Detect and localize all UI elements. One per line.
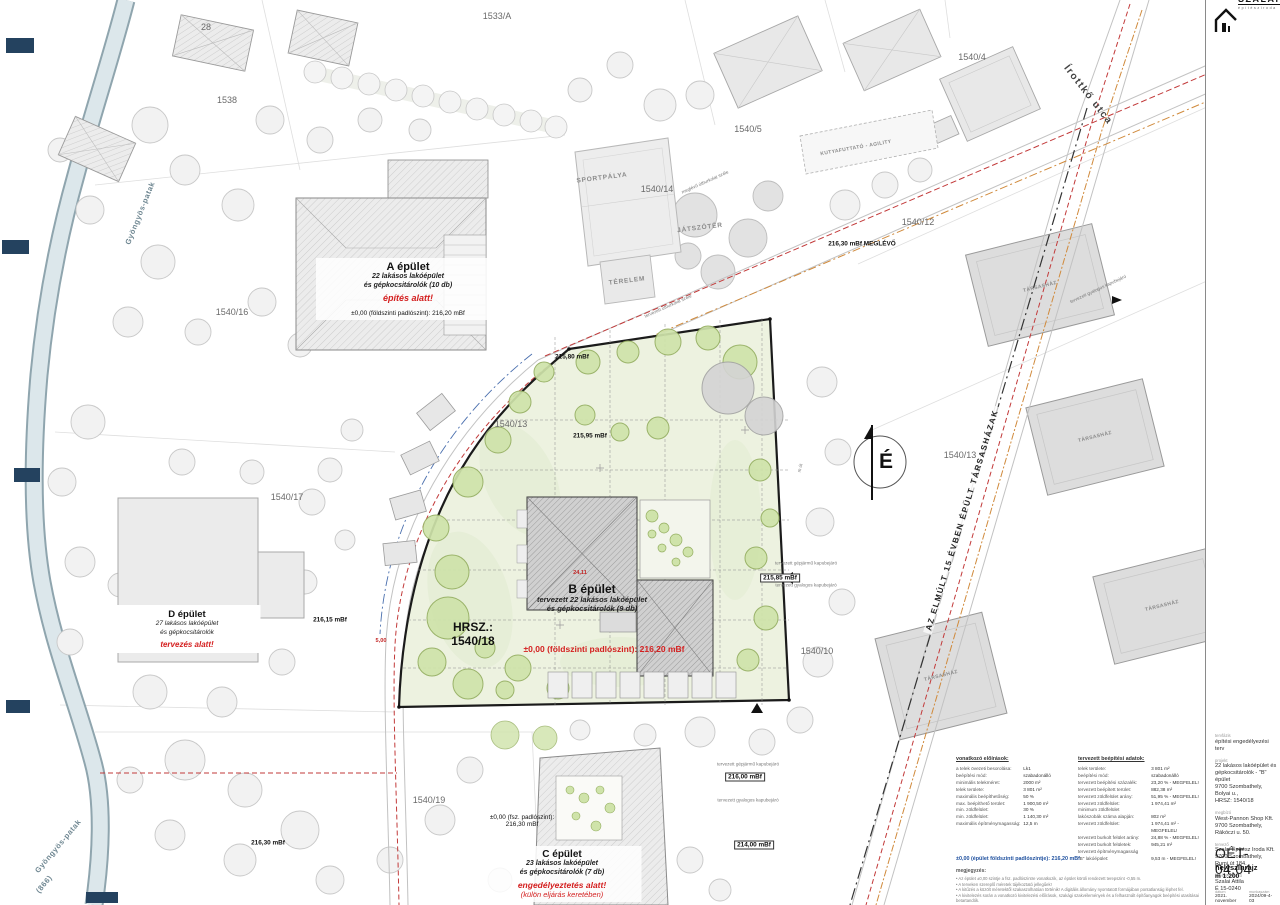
drawing-title: helyszínrajz: [1215, 863, 1258, 872]
title-block-field: megbízó West-Pannon Shop Kft. 9700 Szomb…: [1215, 810, 1277, 837]
planned-title: tervezett beépítési adatok:: [1078, 756, 1204, 762]
table-row: "B" lakóépület: 9,53 m - MEGFELEL!: [1078, 856, 1204, 863]
building-c-status2: (külön eljárás keretében): [490, 890, 635, 899]
title-block: SZALAI építésziroda tervfázis építési en…: [1205, 0, 1280, 905]
site-hrsz-label: HRSZ.: 1540/18: [451, 620, 494, 648]
building-d-desc2: és gépkocsitárolók: [120, 629, 255, 638]
building-b-desc2: és gépkocsitárolók (9 db): [487, 605, 697, 614]
building-c-status: engedélyeztetés alatt!: [490, 880, 635, 890]
table-row: beépítési mód: szabadonálló: [956, 773, 1072, 780]
building-b-title: B épület: [487, 582, 697, 596]
table-row: tervezett burkolt felület arány: 24,88 %…: [1078, 835, 1204, 842]
note-item: A kivitelezés során a vonatkozó kivitele…: [956, 893, 1206, 904]
tree-allee: [304, 61, 567, 138]
site-1540-18: [397, 296, 1122, 750]
table-row: maximális beépíthetőség: 50 %: [956, 794, 1072, 801]
table-row: tervezett zöldfelület arány: 51,95 % - M…: [1078, 794, 1204, 801]
title-block-meta: dátum 2021. november munkaszám 2024/09-4…: [1215, 890, 1277, 904]
building-c-desc2: és gépkocsitárolók (7 db): [490, 869, 635, 878]
table-row: max. beépíthető terület: 1 900,50 m²: [956, 801, 1072, 808]
table-row: minimális telekméret: 2000 m²: [956, 780, 1072, 787]
worknum-value: 2024/09-4-03: [1249, 894, 1277, 904]
building-a-desc: 22 lakásos lakóépület: [323, 273, 493, 282]
building-d-status: tervezés alatt!: [120, 640, 255, 649]
regulations-title: vonatkozó előírások:: [956, 756, 1072, 762]
table-row: beépítési mód: szabadonálló: [1078, 773, 1204, 780]
regulations-table: vonatkozó előírások: a telek övezeti bes…: [956, 756, 1072, 828]
table-row: telek területe: 3 801 m²: [1078, 766, 1204, 773]
table-row: telek területe: 3 801 m²: [956, 787, 1072, 794]
table-row: tervezett zöldfelület: 1 974,41 m² - MEG…: [1078, 821, 1204, 835]
building-d-annotation: D épület 27 lakásos lakóépület és gépkoc…: [114, 605, 261, 653]
drawing-scale: m 1:200: [1215, 873, 1239, 880]
table-row: maximális építménymagasság: 12,5 m: [956, 821, 1072, 828]
building-c-desc: 23 lakásos lakóépület: [490, 860, 635, 869]
building-a-status: építés alatt!: [323, 293, 493, 303]
tarsashaz-blocks: [875, 224, 1231, 740]
hrsz-line1: HRSZ.:: [451, 620, 494, 634]
building-a-annotation: A épület 22 lakásos lakóépület és gépkoc…: [316, 258, 500, 320]
trees-south-of-site: [491, 721, 557, 750]
worknum-field: munkaszám 2024/09-4-03: [1249, 890, 1277, 904]
building-c-annotation: C épület 23 lakásos lakóépület és gépkoc…: [483, 846, 642, 902]
building-d-title: D épület: [120, 609, 255, 620]
table-row: tervezett építménymagasság: [1078, 849, 1204, 856]
date-value: 2021. november: [1215, 894, 1249, 904]
building-c-elevation: ±0,00 (fsz. padlószint): 216,30 mBf: [467, 814, 577, 828]
building-a-desc2: és gépkocsitárolók (10 db): [323, 282, 493, 291]
table-row: lakószobák száma alapján: 802 m²: [1078, 814, 1204, 821]
building-a-elevation: ±0,00 (földszinti padlószint): 216,20 mB…: [323, 310, 493, 317]
notes-block: megjegyzés: Az épület ±0,00 szintje a fs…: [956, 868, 1206, 904]
table-row: min. zöldfelület: 1 140,30 m²: [956, 814, 1072, 821]
building-a-title: A épület: [323, 261, 493, 273]
house-logo-icon: [1214, 8, 1276, 34]
building-c-elev2: 216,30 mBf: [467, 821, 577, 828]
north-letter: É: [879, 450, 893, 474]
table-row: tervezett beépítési százalék: 23,20 % - …: [1078, 780, 1204, 787]
table-row: a telek övezeti besorolása: Lk1: [956, 766, 1072, 773]
building-a-footprint: [296, 160, 488, 350]
planned-rows: telek területe: 3 801 m² beépítési mód: …: [1078, 766, 1204, 863]
floor-level-note: ±0,00 (épület földszinti padlószintje): …: [956, 856, 1080, 862]
building-b-annotation: B épület tervezett 22 lakásos lakóépület…: [487, 582, 697, 613]
logo-brand-text: SZALAI: [1238, 0, 1280, 5]
site-plan-page: 1533/A2815381540/41540/51540/141540/1215…: [0, 0, 1280, 905]
planned-data-table: tervezett beépítési adatok: telek terüle…: [1078, 756, 1204, 863]
building-c-elev1: ±0,00 (fsz. padlószint):: [467, 814, 577, 821]
title-block-field: projekt 22 lakásos lakóépület és gépkocs…: [1215, 758, 1277, 806]
playground-trees: [673, 181, 783, 289]
hrsz-line2: 1540/18: [451, 634, 494, 648]
title-block-field: tervfázis építési engedélyezési terv: [1215, 733, 1277, 753]
table-row: min. zöldfelület: 30 %: [956, 807, 1072, 814]
table-row: tervezett zöldfelület: 1 974,41 m²: [1078, 801, 1204, 808]
building-b-elevation: ±0,00 (földszinti padlószint): 216,20 mB…: [494, 644, 714, 654]
notes-items: Az épület ±0,00 szintje a fsz. padlószin…: [956, 876, 1206, 904]
notes-title: megjegyzés:: [956, 868, 1206, 874]
date-field: dátum 2021. november: [1215, 890, 1249, 904]
table-row: minimum zöldfelület: [1078, 807, 1204, 814]
building-b-elevation-text: ±0,00 (földszinti padlószint): 216,20 mB…: [494, 644, 714, 654]
building-d-desc: 27 lakásos lakóépület: [120, 620, 255, 629]
terelem-pad: [600, 255, 655, 304]
regulations-rows: a telek övezeti besorolása: Lk1 beépítés…: [956, 766, 1072, 828]
building-c-title: C épület: [490, 849, 635, 860]
firm-logo: SZALAI építésziroda: [1214, 8, 1276, 10]
table-row: tervezett burkolt felületek: 945,21 m²: [1078, 842, 1204, 849]
sport-field: [575, 138, 681, 266]
table-row: tervezett beépített terület: 882,38 m²: [1078, 787, 1204, 794]
note-item: A kitűzés a közölt méretektől szakaszolh…: [956, 887, 1206, 893]
